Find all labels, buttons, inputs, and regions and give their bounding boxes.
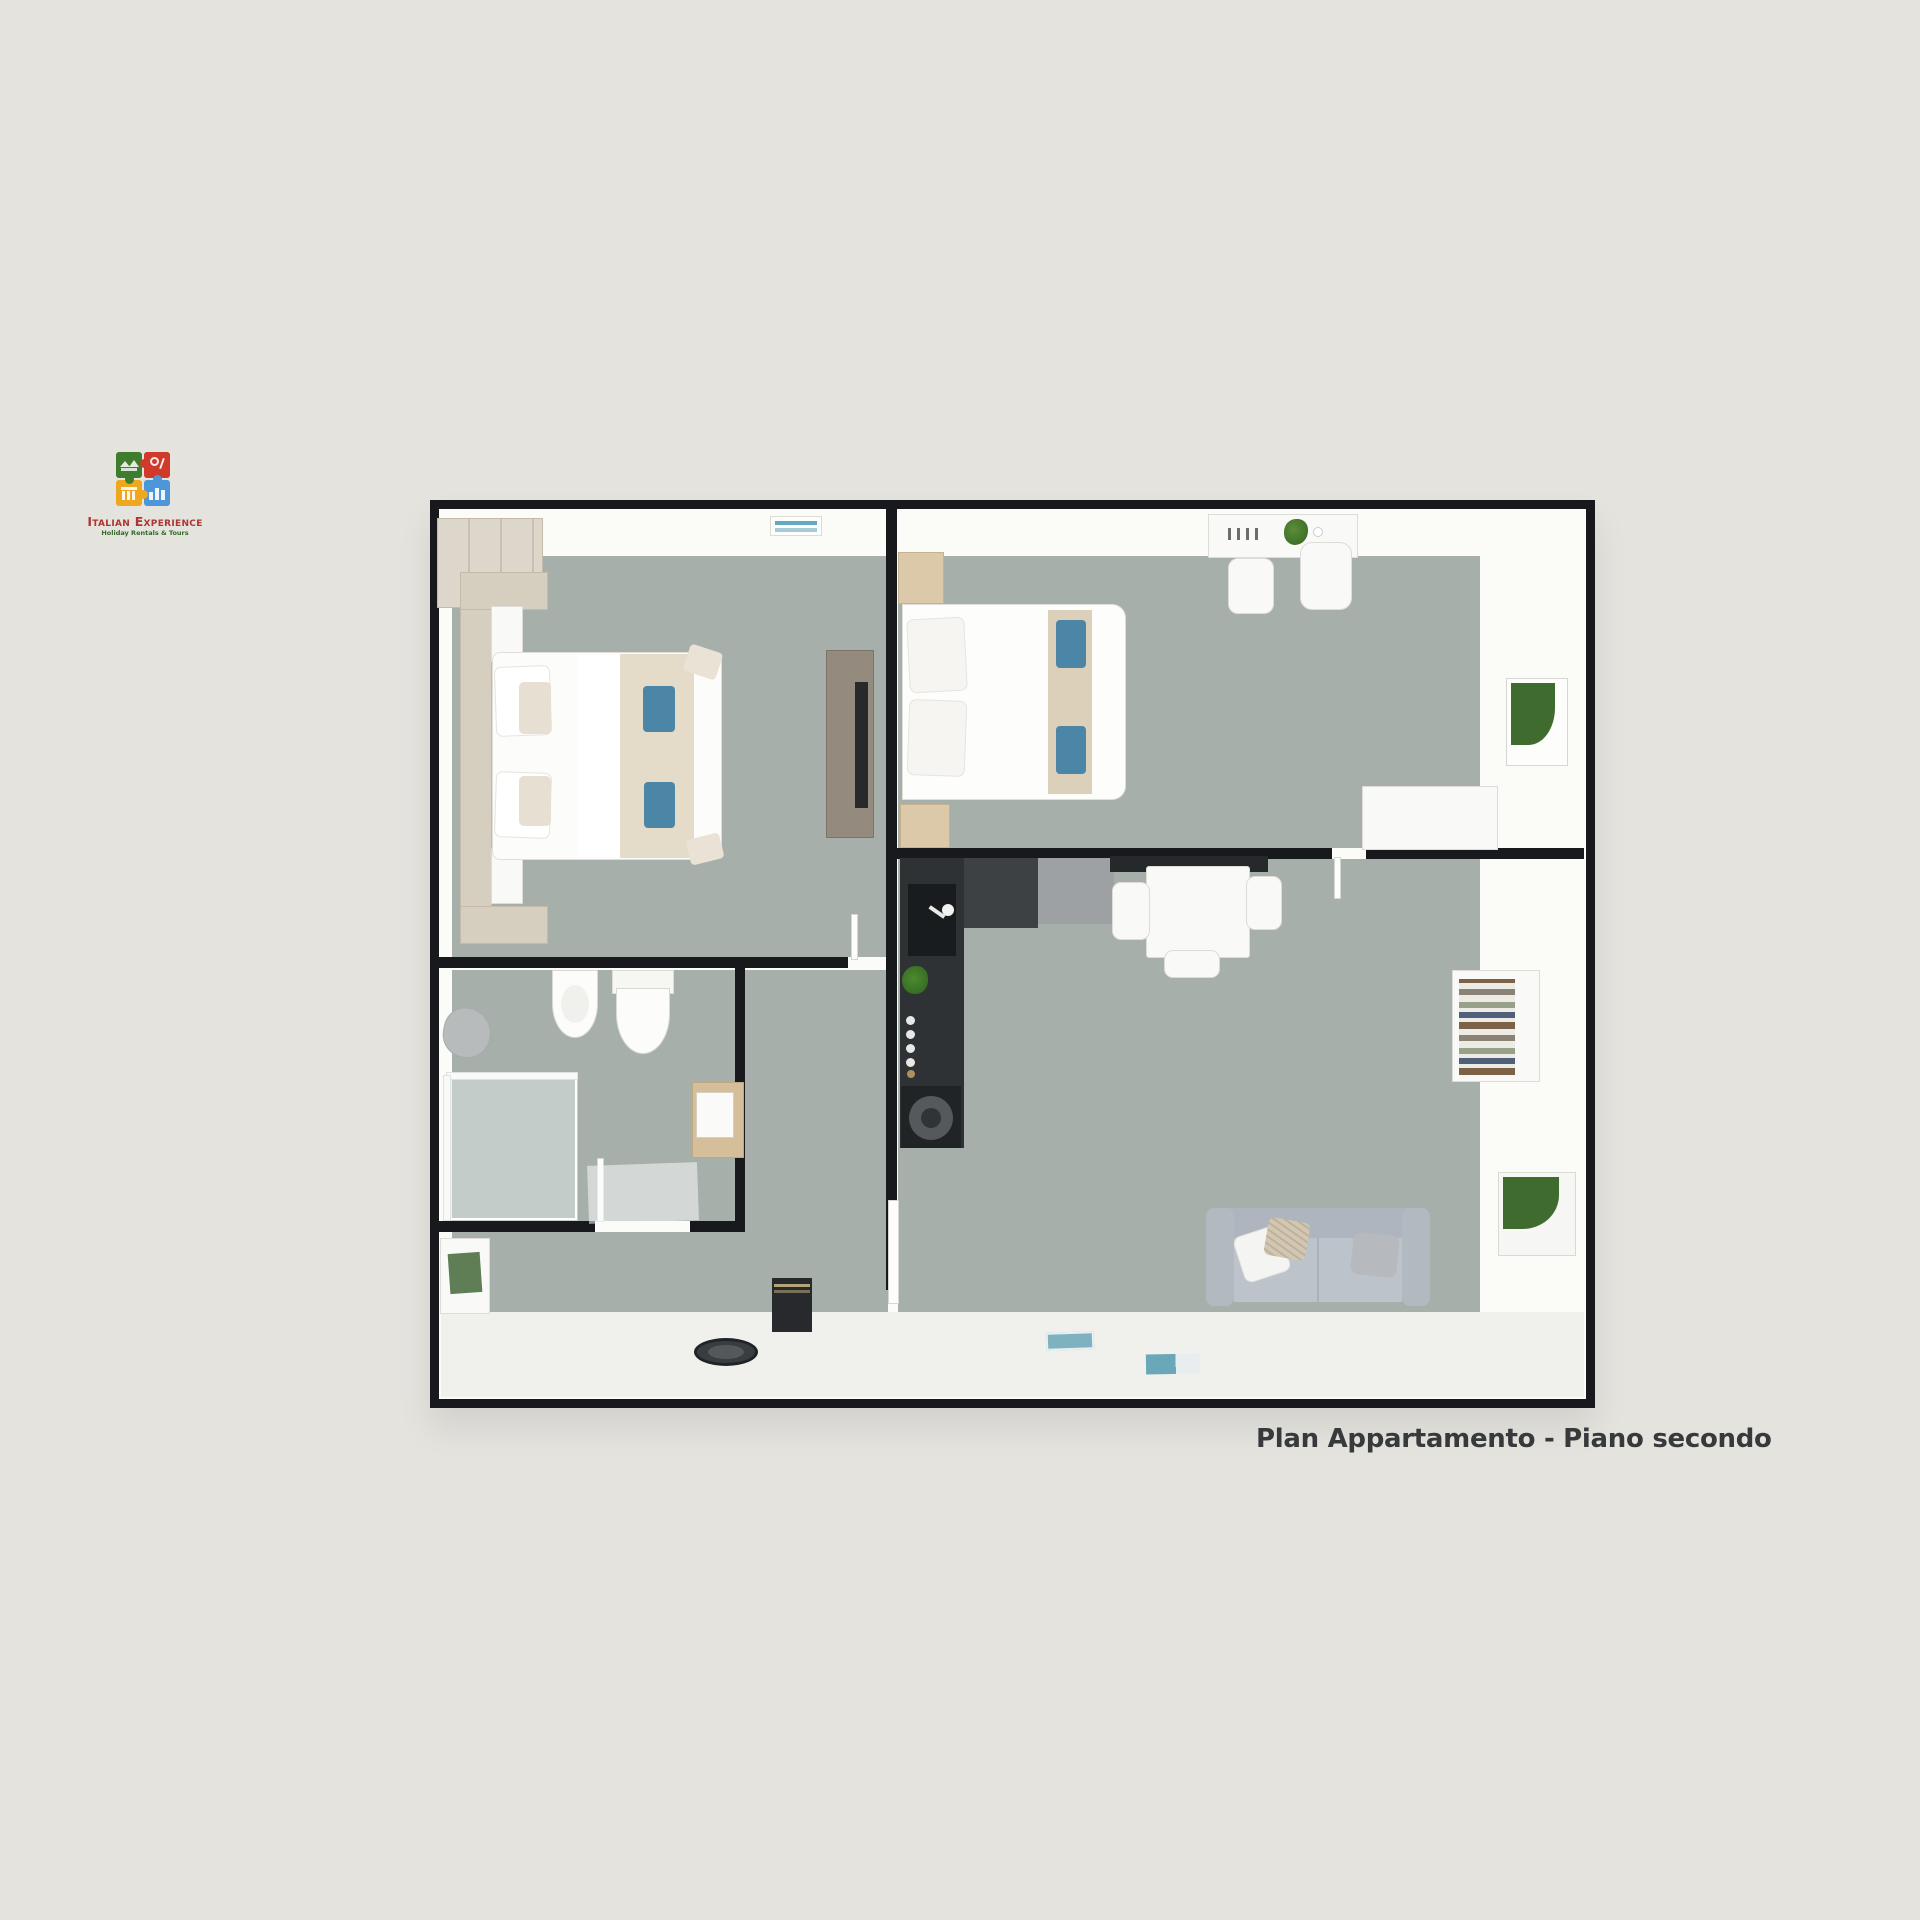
wall-bathroom-bottom [439, 1221, 595, 1232]
wall-bedroom1-bottom [439, 957, 848, 968]
sofa-pillow-striped [1263, 1217, 1311, 1262]
door-bedroom2 [1334, 857, 1341, 899]
hob-knob [906, 1030, 915, 1039]
round-rug [694, 1338, 758, 1366]
pillow [907, 699, 968, 777]
company-logo: Italian Experience Holiday Rentals & Tou… [85, 450, 205, 542]
vent-slat [775, 528, 817, 532]
dining-chair [1164, 950, 1220, 978]
burner-center [921, 1108, 941, 1128]
radiator-art-green [448, 1252, 483, 1294]
temple-icon [122, 491, 125, 500]
tv [855, 682, 868, 808]
village-base [121, 468, 137, 471]
wall-bathroom-bottom [690, 1221, 745, 1232]
shower-frame [446, 1072, 578, 1080]
wall-divider [886, 509, 897, 1290]
duvet-fold [578, 654, 622, 858]
cushion [519, 776, 551, 826]
sofa-back [1206, 1208, 1430, 1238]
rug-center [708, 1345, 744, 1359]
desk-chair [1228, 558, 1274, 614]
dining-chair [1246, 876, 1282, 930]
puzzle-knob [125, 475, 134, 484]
shower-mat [587, 1162, 699, 1224]
sofa-arm [1402, 1208, 1430, 1306]
laptop-keys [1228, 528, 1262, 540]
desk-chair [1300, 542, 1352, 610]
wine-icon [159, 458, 165, 469]
nightstand [898, 552, 944, 604]
pillow [906, 617, 968, 694]
sofa-pillow-gray [1350, 1232, 1400, 1279]
bed-frame [460, 906, 548, 944]
sink-basin [696, 1092, 734, 1138]
wall-art-green [1503, 1177, 1559, 1229]
canvas: Italian Experience Holiday Rentals & Tou… [0, 0, 1920, 1920]
hob-knob [906, 1058, 915, 1067]
puzzle-knob [140, 459, 149, 468]
skyline-icon [161, 490, 165, 500]
floor-mat [1046, 1331, 1095, 1351]
temple-icon [121, 487, 137, 490]
kitchen-plant [902, 966, 928, 994]
kitchen-sink [908, 884, 956, 956]
wall-vent [770, 516, 822, 536]
temple-icon [127, 491, 130, 500]
bookshelf [1452, 970, 1540, 1082]
kitchen-counter [964, 858, 1038, 928]
dining-table [1146, 866, 1250, 958]
bed-frame [460, 572, 492, 944]
blue-cushion [1056, 620, 1086, 668]
hob-knob [906, 1044, 915, 1053]
radiator-cabinet [440, 1238, 490, 1314]
dining-chair [1112, 882, 1150, 940]
skyline-icon [149, 492, 153, 500]
sofa-arm [1206, 1208, 1234, 1306]
wall-art-frame [1498, 1172, 1576, 1256]
hob-knob [907, 1070, 915, 1078]
chest-of-drawers [1362, 786, 1498, 850]
nightstand [900, 804, 950, 848]
burner [909, 1096, 953, 1140]
blue-cushion [644, 782, 675, 828]
blue-cushion [643, 686, 675, 732]
wine-icon [150, 457, 159, 466]
bin-trim [774, 1290, 810, 1293]
desk-cup [1313, 527, 1323, 537]
floor-hallway [745, 970, 888, 1232]
floor-entry-white [441, 1312, 1584, 1397]
floor-hallway [452, 1232, 888, 1312]
door-living [888, 1200, 899, 1304]
brand-name: Italian Experience [85, 514, 205, 529]
trash-bin [772, 1278, 812, 1332]
books [1459, 979, 1515, 1075]
wall-art-frame [1506, 678, 1568, 766]
kitchen-counter-gray [1038, 858, 1114, 924]
vent-slat [775, 521, 817, 525]
brand-tagline: Holiday Rentals & Tours [85, 529, 205, 537]
puzzle-knob [139, 490, 148, 499]
bidet [552, 970, 598, 1038]
shower-frame [443, 1075, 451, 1221]
puzzle-logo-icon [116, 452, 173, 509]
bed-frame [460, 572, 548, 610]
floor-mat [1146, 1354, 1200, 1375]
hob-knob [906, 1016, 915, 1025]
puzzle-knob [153, 475, 162, 484]
door-bedroom1 [851, 914, 858, 960]
sofa-seam [1317, 1238, 1319, 1302]
bidet-bowl [561, 985, 589, 1023]
village-icon [129, 460, 139, 467]
temple-icon [132, 491, 135, 500]
sofa [1206, 1208, 1430, 1308]
cushion [519, 682, 551, 734]
shower [447, 1076, 577, 1220]
cooktop [901, 1086, 961, 1148]
skyline-icon [155, 488, 159, 500]
wall-art-green [1511, 683, 1555, 745]
bin-trim [774, 1284, 810, 1287]
blue-cushion [1056, 726, 1086, 774]
plan-caption: Plan Appartamento - Piano secondo [1256, 1424, 1772, 1454]
